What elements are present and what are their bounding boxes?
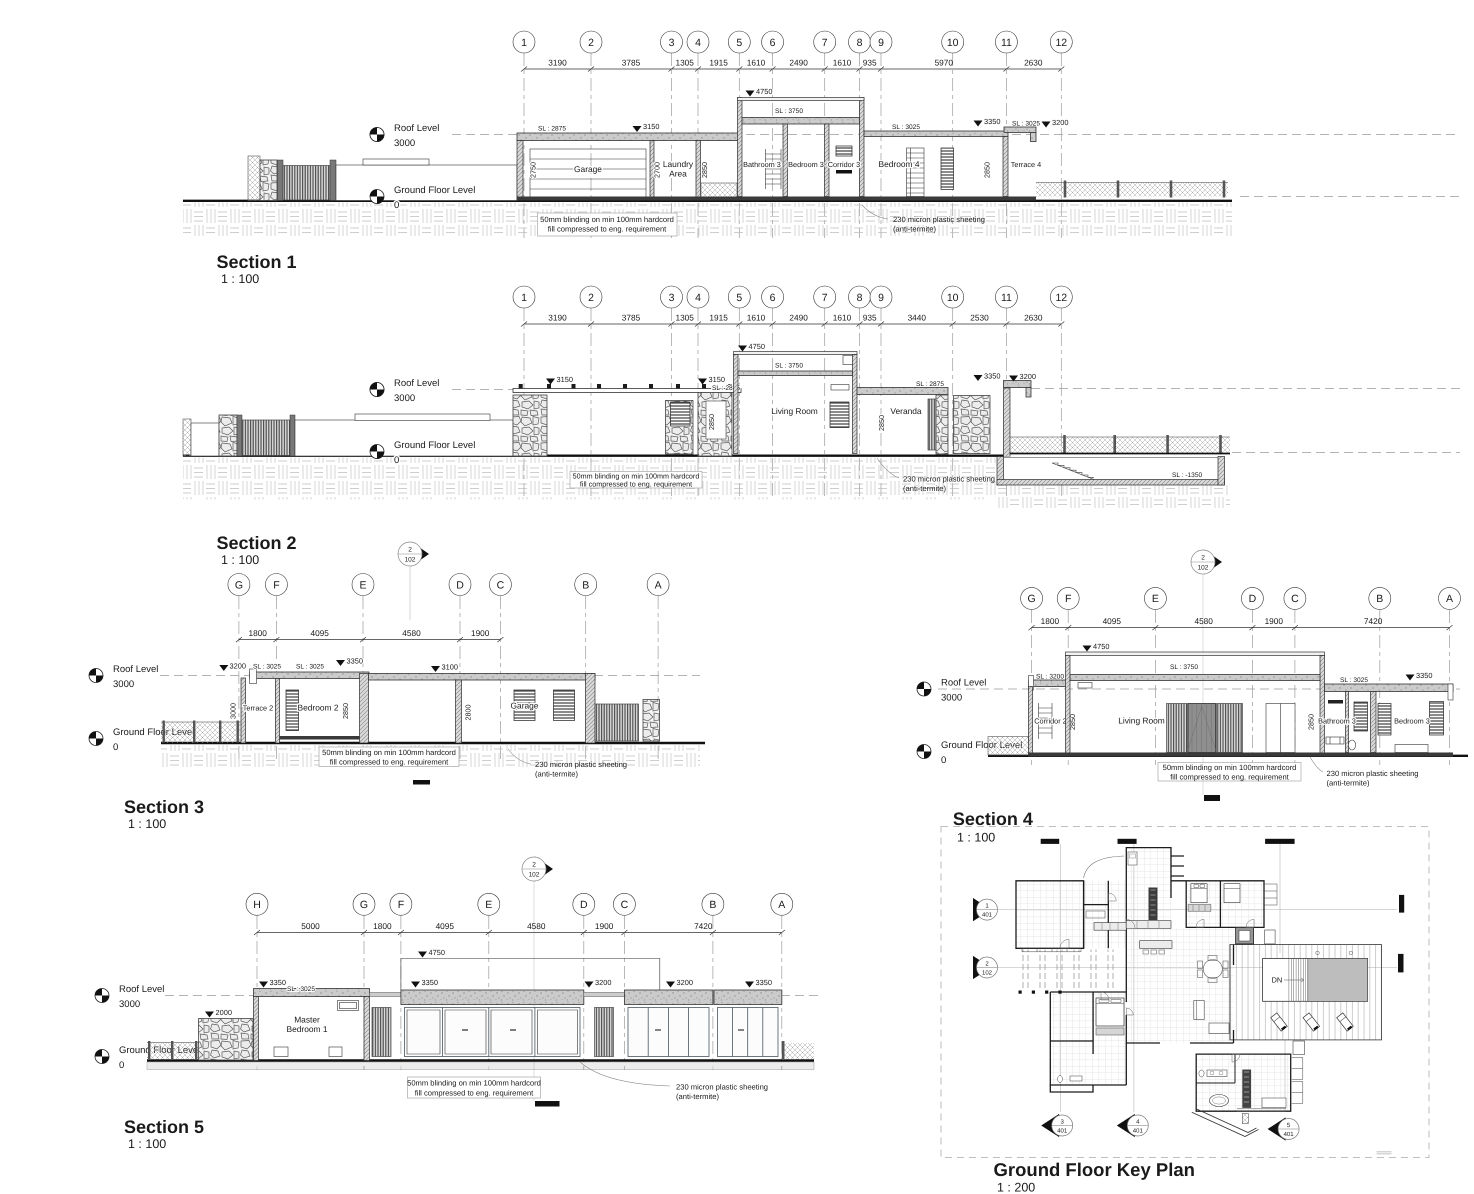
- svg-text:3200: 3200: [677, 978, 693, 987]
- svg-text:0: 0: [119, 1060, 124, 1071]
- svg-text:D: D: [580, 899, 588, 911]
- svg-text:230 micron plastic sheeting: 230 micron plastic sheeting: [893, 215, 985, 224]
- svg-text:2000: 2000: [216, 1008, 232, 1017]
- svg-text:Section 4: Section 4: [953, 809, 1033, 829]
- svg-text:2850: 2850: [700, 162, 709, 178]
- svg-text:Living Room: Living Room: [771, 406, 818, 416]
- svg-text:SL : 3025: SL : 3025: [1012, 121, 1040, 128]
- svg-text:1: 1: [521, 292, 527, 304]
- svg-text:2: 2: [588, 37, 594, 49]
- svg-text:C: C: [621, 899, 629, 911]
- svg-text:4: 4: [695, 37, 701, 49]
- svg-text:Bedroom 1: Bedroom 1: [287, 1024, 328, 1034]
- svg-text:F: F: [1065, 593, 1071, 605]
- svg-text:3200: 3200: [1052, 118, 1068, 127]
- svg-text:4: 4: [695, 292, 701, 304]
- svg-text:0: 0: [394, 200, 399, 211]
- svg-text:Veranda: Veranda: [890, 406, 922, 416]
- svg-text:Bedroom 3: Bedroom 3: [788, 160, 824, 169]
- svg-text:Laundry: Laundry: [663, 159, 694, 169]
- svg-text:401: 401: [1284, 1131, 1295, 1138]
- svg-text:fill compressed to eng. requir: fill compressed to eng. requirement: [1170, 773, 1289, 782]
- svg-text:2850: 2850: [707, 414, 716, 430]
- svg-text:E: E: [359, 579, 366, 591]
- svg-text:3150: 3150: [709, 375, 725, 384]
- svg-text:C: C: [497, 579, 505, 591]
- svg-text:3190: 3190: [548, 58, 567, 68]
- svg-text:4580: 4580: [527, 921, 546, 931]
- svg-text:Corridor 2: Corridor 2: [1034, 717, 1066, 726]
- svg-text:B: B: [709, 899, 716, 911]
- svg-text:Corridor 3: Corridor 3: [828, 160, 860, 169]
- svg-text:A: A: [655, 579, 662, 591]
- svg-text:4580: 4580: [402, 628, 421, 638]
- svg-text:3000: 3000: [941, 693, 962, 704]
- svg-text:Garage: Garage: [574, 164, 602, 174]
- svg-text:fill compressed to eng. requir: fill compressed to eng. requirement: [580, 480, 692, 489]
- svg-text:4095: 4095: [436, 921, 455, 931]
- svg-text:2: 2: [588, 292, 594, 304]
- svg-text:SL : 3750: SL : 3750: [775, 363, 803, 370]
- svg-text:401: 401: [1133, 1128, 1144, 1135]
- svg-text:Terrace 4: Terrace 4: [1011, 160, 1041, 169]
- svg-text:(anti-termite): (anti-termite): [676, 1092, 720, 1101]
- svg-text:230 micron plastic sheeting: 230 micron plastic sheeting: [903, 475, 995, 484]
- svg-text:F: F: [273, 579, 279, 591]
- svg-text:(anti-termite): (anti-termite): [1327, 779, 1371, 788]
- svg-text:D: D: [1249, 593, 1257, 605]
- svg-text:A: A: [778, 899, 785, 911]
- svg-text:Section 3: Section 3: [124, 797, 204, 817]
- svg-text:G: G: [1028, 593, 1036, 605]
- svg-text:4750: 4750: [756, 87, 772, 96]
- svg-text:Master: Master: [294, 1015, 320, 1025]
- svg-text:SL : 3025: SL : 3025: [892, 124, 920, 131]
- svg-text:8: 8: [857, 292, 863, 304]
- svg-text:2800: 2800: [464, 705, 473, 721]
- svg-text:Roof Level: Roof Level: [394, 123, 439, 134]
- svg-text:1900: 1900: [471, 628, 490, 638]
- svg-text:1915: 1915: [709, 313, 728, 323]
- svg-text:Ground Floor Key Plan: Ground Floor Key Plan: [994, 1159, 1195, 1180]
- svg-text:SL : 3200: SL : 3200: [1036, 674, 1064, 681]
- svg-text:6: 6: [770, 37, 776, 49]
- svg-text:3785: 3785: [622, 313, 641, 323]
- svg-text:E: E: [485, 899, 492, 911]
- svg-text:3150: 3150: [643, 122, 659, 131]
- svg-text:1915: 1915: [709, 58, 728, 68]
- svg-text:Bathroom 3: Bathroom 3: [743, 160, 781, 169]
- svg-text:6: 6: [770, 292, 776, 304]
- svg-text:Living Room: Living Room: [1118, 716, 1165, 726]
- svg-text:12: 12: [1055, 292, 1067, 304]
- svg-text:(anti-termite): (anti-termite): [535, 770, 579, 779]
- svg-text:Section 2: Section 2: [217, 533, 297, 553]
- svg-text:SL : 2875: SL : 2875: [916, 381, 944, 388]
- svg-text:3200: 3200: [1020, 372, 1036, 381]
- svg-text:9: 9: [878, 292, 884, 304]
- svg-text:SL : 3750: SL : 3750: [1170, 664, 1198, 671]
- svg-text:(anti-termite): (anti-termite): [893, 225, 937, 234]
- svg-text:5: 5: [736, 292, 742, 304]
- svg-text:(anti-termite): (anti-termite): [903, 484, 947, 493]
- svg-text:1305: 1305: [675, 313, 694, 323]
- svg-text:50mm blinding on min 100mm har: 50mm blinding on min 100mm hardcord: [322, 748, 456, 757]
- svg-text:SL : 3025: SL : 3025: [296, 664, 324, 671]
- svg-text:2: 2: [532, 862, 536, 869]
- svg-text:SL : -1350: SL : -1350: [1172, 472, 1203, 479]
- svg-text:102: 102: [529, 872, 540, 879]
- svg-text:4750: 4750: [1093, 642, 1109, 651]
- svg-text:Bedroom 4: Bedroom 4: [879, 159, 920, 169]
- svg-text:Section 1: Section 1: [217, 252, 297, 272]
- svg-text:2: 2: [408, 547, 412, 554]
- svg-text:Section 5: Section 5: [124, 1117, 204, 1137]
- svg-text:4095: 4095: [1103, 616, 1122, 626]
- svg-text:1900: 1900: [595, 921, 614, 931]
- svg-text:2490: 2490: [789, 313, 808, 323]
- svg-text:401: 401: [1057, 1128, 1068, 1135]
- svg-text:H: H: [253, 899, 261, 911]
- svg-text:2630: 2630: [1024, 313, 1043, 323]
- svg-text:50mm blinding on min 100mm har: 50mm blinding on min 100mm hardcord: [407, 1079, 541, 1088]
- svg-text:2: 2: [1201, 555, 1205, 562]
- svg-text:Roof Level: Roof Level: [394, 378, 439, 389]
- svg-text:4580: 4580: [1194, 616, 1213, 626]
- svg-text:fill compressed to eng. requir: fill compressed to eng. requirement: [415, 1089, 534, 1098]
- svg-text:3350: 3350: [270, 978, 286, 987]
- svg-text:SL : 3025: SL : 3025: [287, 986, 315, 993]
- svg-text:3: 3: [669, 37, 675, 49]
- svg-text:3200: 3200: [595, 978, 611, 987]
- svg-text:4095: 4095: [310, 628, 329, 638]
- svg-text:10: 10: [947, 37, 959, 49]
- svg-text:11: 11: [1001, 37, 1012, 49]
- svg-text:9: 9: [878, 37, 884, 49]
- svg-text:Roof Level: Roof Level: [113, 664, 158, 675]
- svg-text:3000: 3000: [394, 138, 415, 149]
- svg-text:102: 102: [982, 970, 993, 977]
- svg-text:3350: 3350: [756, 978, 772, 987]
- svg-text:102: 102: [405, 557, 416, 564]
- svg-text:230 micron plastic sheeting: 230 micron plastic sheeting: [676, 1083, 768, 1092]
- svg-text:SL : 3750: SL : 3750: [775, 108, 803, 115]
- svg-text:B: B: [582, 579, 589, 591]
- svg-text:3350: 3350: [984, 117, 1000, 126]
- svg-text:2750: 2750: [529, 162, 538, 178]
- svg-text:3785: 3785: [622, 58, 641, 68]
- svg-text:3000: 3000: [394, 393, 415, 404]
- svg-text:0: 0: [113, 742, 118, 753]
- svg-text:Roof Level: Roof Level: [119, 984, 164, 995]
- svg-text:3: 3: [669, 292, 675, 304]
- svg-text:2630: 2630: [1024, 58, 1043, 68]
- svg-text:G: G: [235, 579, 243, 591]
- svg-text:1800: 1800: [1041, 616, 1060, 626]
- svg-text:102: 102: [1198, 565, 1209, 572]
- svg-text:8: 8: [857, 37, 863, 49]
- svg-text:3150: 3150: [557, 375, 573, 384]
- svg-text:F: F: [398, 899, 404, 911]
- svg-text:3100: 3100: [442, 663, 458, 672]
- svg-text:Bedroom 2: Bedroom 2: [298, 703, 339, 713]
- svg-text:50mm blinding on min 100mm har: 50mm blinding on min 100mm hardcord: [540, 215, 674, 224]
- svg-text:230 micron plastic sheeting: 230 micron plastic sheeting: [1327, 769, 1419, 778]
- svg-text:A: A: [1446, 593, 1453, 605]
- svg-text:7420: 7420: [1364, 616, 1383, 626]
- svg-text:fill compressed to eng. requir: fill compressed to eng. requirement: [548, 225, 667, 234]
- svg-text:1610: 1610: [747, 58, 766, 68]
- svg-text:Bedroom 3: Bedroom 3: [1394, 717, 1430, 726]
- svg-text:230 micron plastic sheeting: 230 micron plastic sheeting: [535, 760, 627, 769]
- svg-text:Roof Level: Roof Level: [941, 678, 986, 689]
- svg-text:G: G: [360, 899, 368, 911]
- svg-text:3350: 3350: [347, 657, 363, 666]
- svg-text:2530: 2530: [970, 313, 989, 323]
- svg-text:B: B: [1376, 593, 1383, 605]
- svg-text:SL : 3025: SL : 3025: [1340, 677, 1368, 684]
- svg-text:1 : 100: 1 : 100: [221, 272, 259, 286]
- svg-text:2850: 2850: [341, 703, 350, 719]
- svg-text:3350: 3350: [1416, 671, 1432, 680]
- svg-text:50mm blinding on min 100mm har: 50mm blinding on min 100mm hardcord: [1163, 763, 1297, 772]
- svg-text:0: 0: [394, 455, 399, 466]
- svg-text:3000: 3000: [229, 703, 238, 719]
- svg-text:1 : 100: 1 : 100: [957, 831, 995, 845]
- svg-text:5: 5: [736, 37, 742, 49]
- svg-text:1305: 1305: [675, 58, 694, 68]
- svg-text:3190: 3190: [548, 313, 567, 323]
- svg-text:Area: Area: [669, 169, 687, 179]
- svg-text:D: D: [456, 579, 464, 591]
- svg-text:1 : 100: 1 : 100: [128, 817, 166, 831]
- svg-text:C: C: [1291, 593, 1299, 605]
- svg-text:1610: 1610: [747, 313, 766, 323]
- svg-text:4750: 4750: [749, 342, 765, 351]
- svg-text:1800: 1800: [373, 921, 392, 931]
- svg-text:10: 10: [947, 292, 959, 304]
- svg-text:Ground Floor Level: Ground Floor Level: [394, 185, 475, 196]
- svg-text:2850: 2850: [983, 162, 992, 178]
- svg-text:3000: 3000: [119, 999, 140, 1010]
- svg-text:1610: 1610: [833, 313, 852, 323]
- svg-text:2850: 2850: [1307, 714, 1316, 730]
- svg-text:1800: 1800: [248, 628, 267, 638]
- svg-text:1610: 1610: [833, 58, 852, 68]
- svg-text:2700: 2700: [653, 162, 662, 178]
- svg-text:7420: 7420: [694, 921, 713, 931]
- svg-text:5970: 5970: [935, 58, 954, 68]
- svg-text:3440: 3440: [908, 313, 927, 323]
- svg-text:1: 1: [521, 37, 527, 49]
- svg-text:Garage: Garage: [511, 701, 539, 711]
- svg-text:935: 935: [863, 313, 877, 323]
- svg-text:Ground Floor Level: Ground Floor Level: [394, 440, 475, 451]
- svg-text:Terrace 2: Terrace 2: [243, 704, 273, 713]
- svg-text:401: 401: [982, 912, 993, 919]
- svg-text:3200: 3200: [230, 662, 246, 671]
- svg-text:935: 935: [863, 58, 877, 68]
- svg-text:12: 12: [1055, 37, 1067, 49]
- svg-text:SL : 3025: SL : 3025: [253, 664, 281, 671]
- svg-text:DN: DN: [1272, 976, 1283, 985]
- svg-text:E: E: [1152, 593, 1159, 605]
- svg-text:SL : 2875: SL : 2875: [538, 126, 566, 133]
- svg-text:3000: 3000: [113, 679, 134, 690]
- svg-text:Bathroom 3: Bathroom 3: [1318, 717, 1356, 726]
- svg-text:2850: 2850: [877, 415, 886, 431]
- svg-text:7: 7: [822, 292, 828, 304]
- svg-text:2490: 2490: [789, 58, 808, 68]
- svg-text:0: 0: [941, 755, 946, 766]
- svg-text:11: 11: [1001, 292, 1012, 304]
- svg-text:1900: 1900: [1265, 616, 1284, 626]
- svg-text:5000: 5000: [301, 921, 320, 931]
- svg-text:1 : 100: 1 : 100: [221, 553, 259, 567]
- svg-text:1 : 100: 1 : 100: [128, 1137, 166, 1151]
- svg-text:1 : 200: 1 : 200: [997, 1181, 1035, 1194]
- svg-text:3350: 3350: [984, 372, 1000, 381]
- svg-text:3350: 3350: [422, 978, 438, 987]
- svg-text:4750: 4750: [429, 948, 445, 957]
- svg-text:fill compressed to eng. requir: fill compressed to eng. requirement: [330, 758, 449, 767]
- svg-text:7: 7: [822, 37, 828, 49]
